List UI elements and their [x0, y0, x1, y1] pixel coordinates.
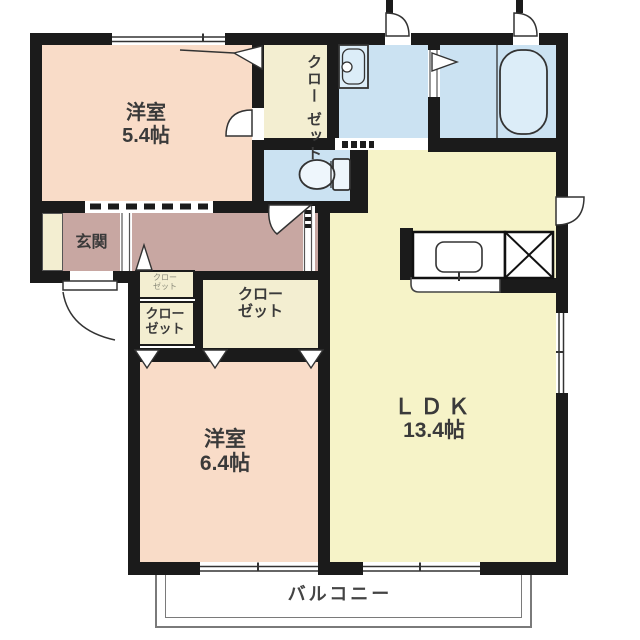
- bedroom1-label: 洋室 5.4帖: [66, 102, 226, 148]
- front-door-arc: [63, 292, 115, 340]
- balcony-label: バルコニー: [190, 584, 490, 605]
- bathtub: [497, 45, 547, 138]
- bedroom1-size: 5.4帖: [66, 125, 226, 148]
- bedroom2-size: 6.4帖: [145, 452, 305, 476]
- washbasin: [339, 45, 368, 88]
- middle-closet-label: クロー ゼット: [203, 286, 318, 321]
- middle-closet-line2: ゼット: [203, 303, 318, 320]
- ldk-service-door-arc: [556, 197, 584, 225]
- ldk-label: ＬＤＫ 13.4帖: [354, 394, 514, 443]
- kitchen-counter: [411, 232, 505, 292]
- closet-bedroom1-line1: クロー: [305, 54, 322, 105]
- bedroom1-door-arc: [226, 110, 252, 136]
- closet-bedroom1-label: クロー ゼット: [268, 54, 322, 134]
- small-closet-bottom-line2: ゼット: [135, 322, 195, 337]
- ldk-size: 13.4帖: [354, 419, 514, 443]
- bedroom2-label: 洋室 6.4帖: [145, 428, 305, 476]
- small-closet-bottom-line1: クロー: [135, 307, 195, 322]
- toilet: [300, 159, 351, 190]
- front-door-leaf: [63, 281, 117, 290]
- entrance-label: 玄関: [63, 234, 120, 252]
- ldk-name: ＬＤＫ: [354, 394, 514, 419]
- refrigerator-space: [505, 232, 553, 278]
- floorplan-canvas: 洋室 5.4帖 クロー ゼット 玄関 クロー ゼット クロー ゼット クロー ゼ…: [0, 0, 640, 640]
- outswing-door-arc-2: [514, 13, 537, 36]
- outswing-door-arc-1: [386, 13, 409, 36]
- closet-bedroom1-line2: ゼット: [305, 111, 322, 162]
- small-closet-top-line2: ゼット: [135, 283, 195, 292]
- bedroom2-name: 洋室: [145, 428, 305, 452]
- middle-closet-line1: クロー: [203, 286, 318, 303]
- small-closet-top-label: クロー ゼット: [135, 274, 195, 292]
- small-closet-bottom-label: クロー ゼット: [135, 307, 195, 337]
- bedroom1-name: 洋室: [66, 102, 226, 125]
